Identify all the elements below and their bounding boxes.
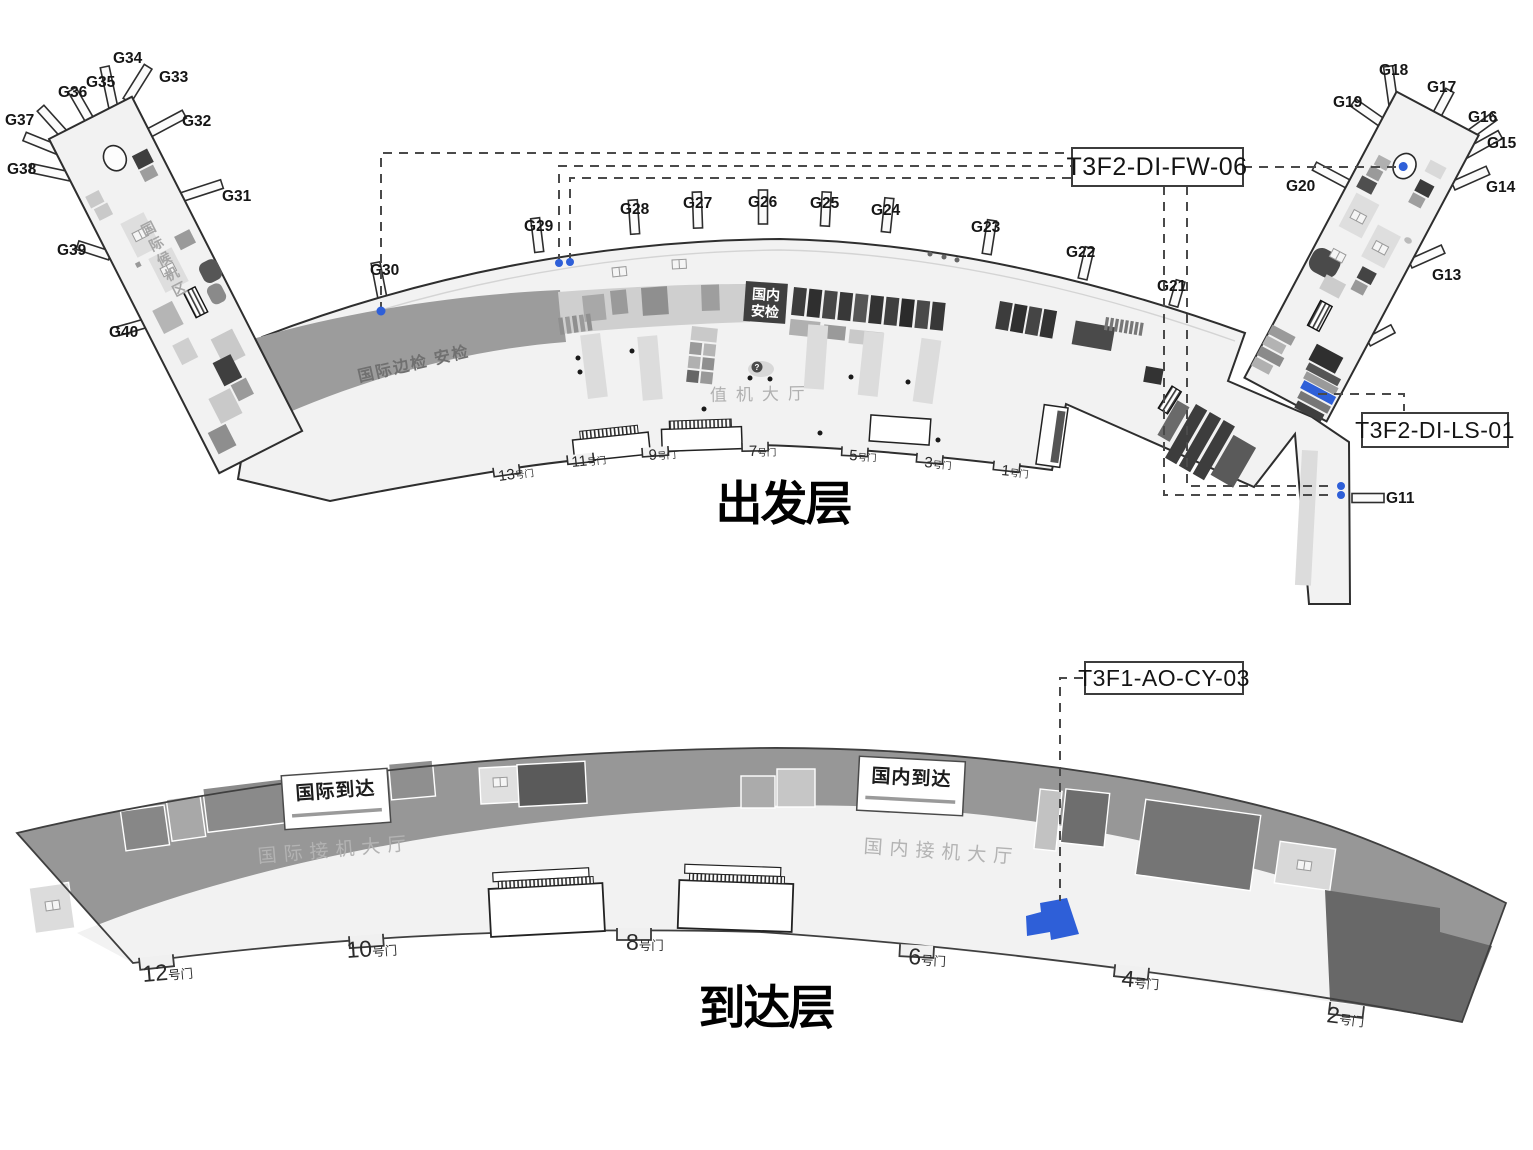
sign-domestic-arrivals: 国内到达 [857,756,966,815]
gate-label: G20 [1286,178,1315,195]
domestic-security-line2: 安检 [750,302,779,320]
arrival-map: 国际到达 国内到达 国际接机大厅 国内接机大厅 T3F1-AO-CY-03 12… [17,662,1506,1034]
checkin-hall-label: 值机大厅 [710,384,814,405]
gate-label: G19 [1333,94,1363,111]
gate-label: G27 [683,195,712,212]
gate-label: G33 [159,69,189,86]
gate-label: G17 [1427,79,1456,96]
gate-label: G35 [86,74,116,91]
gate-label: G22 [1066,244,1095,261]
annotation-cy: T3F1-AO-CY-03 [1078,662,1250,694]
gate-label: G14 [1486,179,1516,196]
arrival-title: 到达层 [699,981,835,1034]
info-question-mark: ? [755,363,760,372]
annotation-ls: T3F2-DI-LS-01 [1355,413,1515,447]
left-pier: 国际候机区 [49,96,303,473]
annotation-fw: T3F2-DI-FW-06 [1066,148,1247,186]
gate-label: G15 [1487,135,1517,152]
gate-label: G29 [524,218,554,235]
baggage-carousel-1 [488,867,605,937]
gate-label: G21 [1157,278,1187,295]
domestic-security: 国内 安检 [743,281,788,324]
gate-label: G13 [1432,267,1462,284]
gate-label: G37 [5,112,34,129]
gate-label: G36 [58,84,88,101]
annotation-cy-label: T3F1-AO-CY-03 [1078,665,1250,691]
gate-label: G39 [57,242,87,259]
annotation-fw-label: T3F2-DI-FW-06 [1066,153,1247,181]
gate-label: G38 [7,161,37,178]
gate-label: G28 [620,201,650,218]
gate-label: G40 [109,324,138,341]
gate-label: G26 [748,194,778,211]
gate-label: G23 [971,219,1001,236]
baggage-carousel-2 [678,864,794,932]
gate-label: G24 [871,202,901,219]
gate-label: G16 [1468,109,1498,126]
gate-label: G34 [113,50,143,67]
gate-label: G30 [370,262,399,279]
gate-label: G31 [222,188,252,205]
departure-map: 国际边检 安检 国内 安检 [5,50,1517,604]
domestic-security-line1: 国内 [752,285,781,303]
annotation-ls-label: T3F2-DI-LS-01 [1355,417,1515,443]
gate-label: G25 [810,195,840,212]
departure-title: 出发层 [716,477,852,530]
sign-international-arrivals: 国际到达 [281,768,391,829]
gate-label: G18 [1379,62,1409,79]
gate-label: G11 [1386,490,1415,507]
airport-terminal-map: 国际边检 安检 国内 安检 [0,0,1533,1150]
right-pier [1243,92,1479,424]
gate-label: G32 [182,113,211,130]
